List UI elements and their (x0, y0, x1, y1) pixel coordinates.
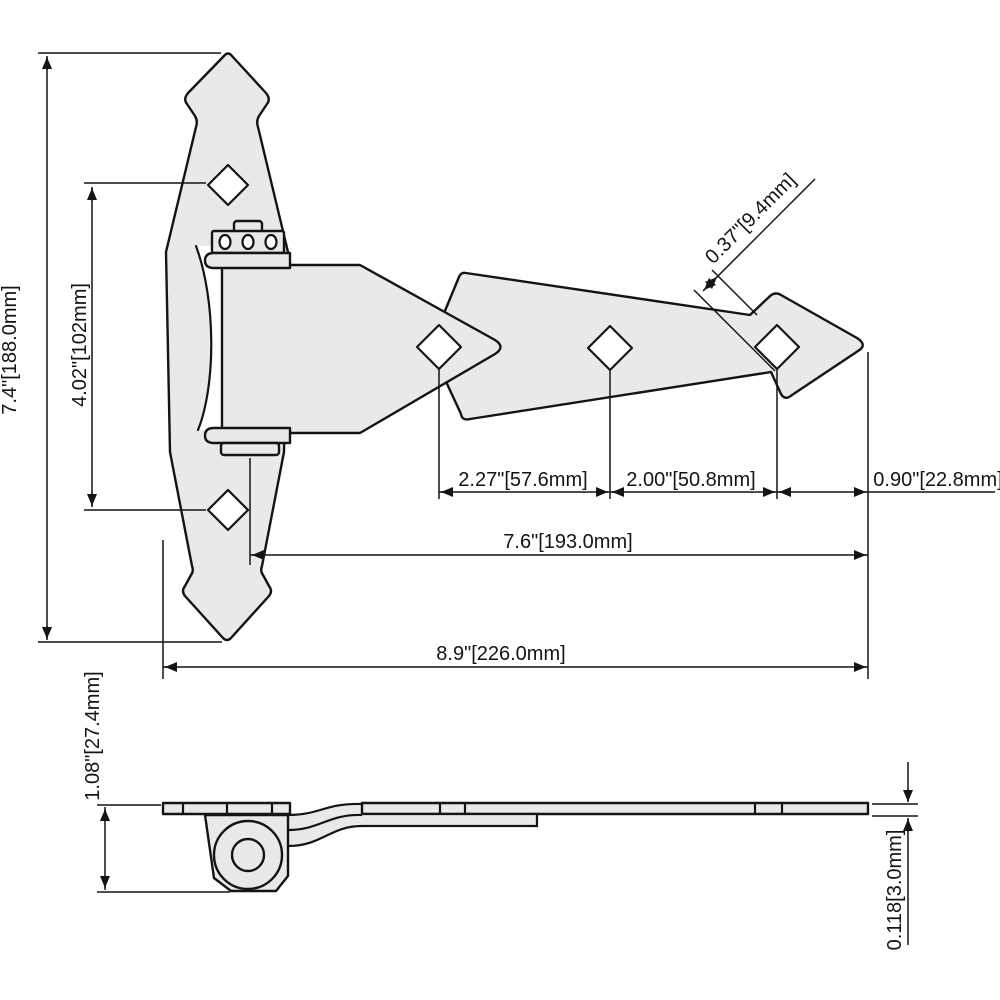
dimension-label: 8.9"[226.0mm] (436, 643, 565, 665)
side-view (163, 803, 868, 891)
knuckle-plate-bottom (205, 428, 290, 443)
hinge-drawing-canvas: 7.4"[188.0mm] 4.02"[102mm] 0.37"[9.4mm] (0, 0, 1000, 1000)
bracket-hole (220, 235, 231, 249)
dimension-label: 0.37"[9.4mm] (701, 169, 800, 268)
dim-pin-to-tip: 7.6"[193.0mm] (250, 531, 868, 555)
dimension-label: 0.90"[22.8mm] (873, 469, 1000, 491)
knuckle-plate-top (205, 253, 290, 268)
dimension-label: 7.4"[188.0mm] (0, 285, 21, 414)
dimension-label: 0.118[3.0mm] (884, 830, 906, 951)
gooseneck-fill (288, 804, 362, 846)
bracket-hole (266, 235, 277, 249)
dimension-label: 1.08"[27.4mm] (82, 671, 104, 800)
dimension-label: 2.00"[50.8mm] (626, 469, 755, 491)
dim-overall-length: 8.9"[226.0mm] (163, 643, 868, 667)
dimension-label: 4.02"[102mm] (69, 283, 91, 407)
dim-side-height: 1.08"[27.4mm] (82, 671, 105, 890)
bracket-hole (243, 235, 254, 249)
technical-drawing-page: 7.4"[188.0mm] 4.02"[102mm] 0.37"[9.4mm] (0, 0, 1000, 1000)
dim-leaf-thickness: 0.118[3.0mm] (884, 762, 908, 950)
pintle-bracket-bottom (221, 443, 279, 455)
side-under-leaf-fill (362, 814, 537, 826)
pin-bore (232, 839, 264, 871)
dimension-label: 7.6"[193.0mm] (503, 531, 632, 553)
dim-hole-chain: 2.27"[57.6mm] 2.00"[50.8mm] 0.90"[22.8mm… (439, 469, 1000, 492)
dim-vertical-hole-spacing: 4.02"[102mm] (69, 187, 92, 507)
dim-overall-height: 7.4"[188.0mm] (0, 56, 47, 640)
side-long-leaf (362, 803, 868, 814)
dimension-label: 2.27"[57.6mm] (458, 469, 587, 491)
